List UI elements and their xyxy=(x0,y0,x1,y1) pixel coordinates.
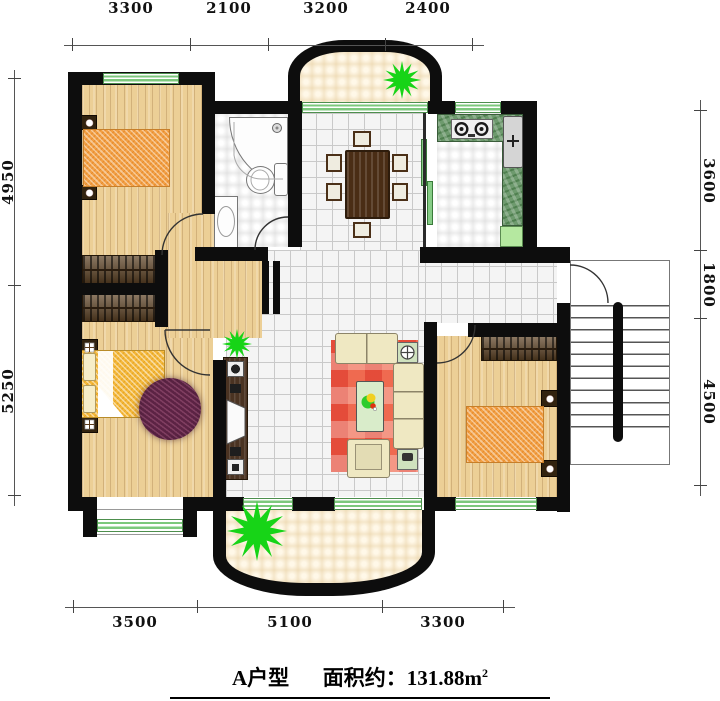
nightstand xyxy=(81,185,97,200)
dining-chair xyxy=(392,154,408,172)
dim-label-top-2: 2100 xyxy=(199,0,259,17)
wall xyxy=(155,250,168,327)
dim-tick xyxy=(694,485,707,486)
armchair-cushion xyxy=(355,444,382,470)
dimension-line-top xyxy=(64,45,484,46)
duct-shaft-wall xyxy=(262,261,269,314)
wall xyxy=(292,497,335,511)
bay-window xyxy=(97,519,183,532)
dim-tick xyxy=(197,600,198,613)
toilet-tank xyxy=(274,163,288,196)
dim-tick xyxy=(8,285,21,286)
dim-label-bottom-3: 3300 xyxy=(413,613,473,631)
bay-wall-left xyxy=(83,509,97,537)
pillow xyxy=(83,353,96,381)
dim-label-bottom-1: 3500 xyxy=(105,613,165,631)
wall xyxy=(213,360,226,511)
dim-tick xyxy=(694,318,707,319)
loveseat-sofa xyxy=(335,333,398,364)
dining-chair xyxy=(326,154,342,172)
dim-label-right-2: 1800 xyxy=(700,255,718,315)
dimension-line-bottom xyxy=(65,607,515,608)
nightstand xyxy=(81,115,97,130)
dim-tick xyxy=(8,78,21,79)
dim-tick xyxy=(694,110,707,111)
dim-tick xyxy=(385,38,386,51)
side-table xyxy=(397,342,418,363)
av-device xyxy=(230,447,241,456)
wall xyxy=(202,101,302,114)
dim-label-top-3: 3200 xyxy=(296,0,356,17)
sink-basin xyxy=(217,206,235,237)
window xyxy=(103,73,179,84)
dining-chair xyxy=(326,183,342,201)
nightstand xyxy=(81,416,98,433)
dim-tick xyxy=(472,38,473,51)
wall xyxy=(195,247,268,261)
dining-chair xyxy=(353,131,371,147)
wall xyxy=(202,114,215,214)
wardrobe xyxy=(481,336,557,361)
dim-tick xyxy=(268,38,269,51)
toilet-bowl xyxy=(246,166,275,194)
wardrobe xyxy=(82,294,156,322)
floor-plan: 3300 2100 3200 2400 3500 5100 3300 4950 … xyxy=(0,0,720,701)
bay-wall-right xyxy=(183,509,197,537)
dim-label-left-2: 5250 xyxy=(0,361,17,421)
dining-chair xyxy=(392,183,408,201)
side-table xyxy=(397,449,418,470)
wall xyxy=(424,497,456,511)
pillow xyxy=(83,385,96,413)
dim-label-right-3: 4500 xyxy=(700,372,718,432)
three-seat-sofa xyxy=(393,363,424,449)
wall xyxy=(523,101,537,247)
fridge xyxy=(503,116,523,168)
duct-shaft-wall xyxy=(273,261,280,314)
unit-name: A户型 xyxy=(232,666,289,690)
dim-tick xyxy=(73,600,74,613)
dining-chair xyxy=(353,222,371,238)
dim-label-right-1: 3600 xyxy=(700,151,718,211)
wardrobe xyxy=(82,255,156,284)
balcony-bottom xyxy=(213,510,435,596)
wall xyxy=(420,247,570,263)
wall xyxy=(68,283,155,295)
stair-handrail xyxy=(613,302,623,442)
dim-label-left-1: 4950 xyxy=(0,152,17,212)
dim-label-top-4: 2400 xyxy=(398,0,458,17)
dimension-line-left xyxy=(14,70,15,506)
wall xyxy=(424,322,437,498)
wall xyxy=(536,497,570,511)
wall xyxy=(68,497,97,511)
nightstand xyxy=(541,390,558,407)
dim-label-bottom-2: 5100 xyxy=(260,613,320,631)
stove xyxy=(451,119,493,139)
single-bed xyxy=(466,406,544,463)
coffee-table xyxy=(356,381,384,432)
dim-tick xyxy=(382,600,383,613)
window xyxy=(243,498,293,510)
dining-table xyxy=(345,150,390,219)
dim-tick xyxy=(694,250,707,251)
plan-title: A户型 面积约：131.88m2 xyxy=(170,662,550,699)
sliding-door-panel xyxy=(427,181,433,225)
single-bed xyxy=(83,129,170,187)
av-device xyxy=(230,384,241,393)
window xyxy=(455,102,501,113)
wall xyxy=(428,101,455,114)
kitchen-partition xyxy=(423,113,426,247)
area-exponent: 2 xyxy=(482,666,488,680)
round-rug xyxy=(139,378,201,440)
window xyxy=(455,498,537,510)
wall xyxy=(468,323,570,337)
window xyxy=(302,102,428,113)
kitchen-cabinet xyxy=(500,226,523,247)
wall xyxy=(183,497,215,511)
area-text: 面积约：131.88m xyxy=(323,666,482,690)
window xyxy=(334,498,422,510)
wall xyxy=(288,101,302,247)
speaker xyxy=(227,459,244,475)
dim-tick xyxy=(8,495,21,496)
dim-tick xyxy=(503,600,504,613)
dim-tick xyxy=(190,38,191,51)
dim-label-top-1: 3300 xyxy=(101,0,161,17)
speaker xyxy=(227,361,244,377)
dim-tick xyxy=(72,38,73,51)
